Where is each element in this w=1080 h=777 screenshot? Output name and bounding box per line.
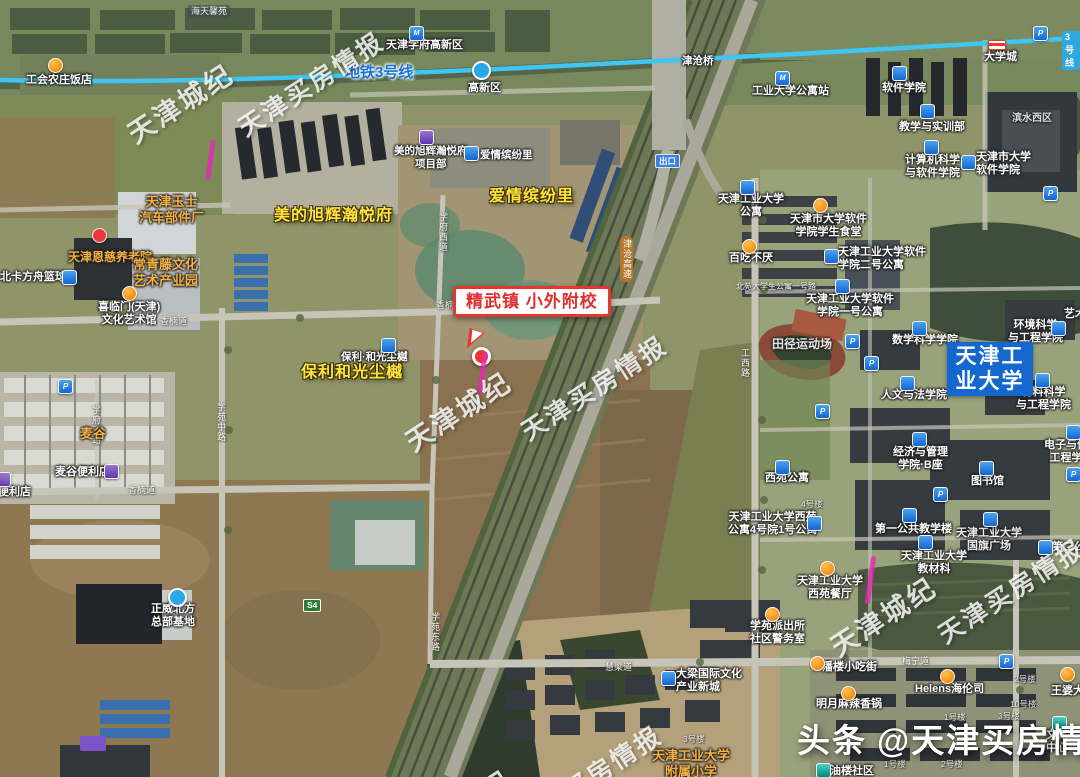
parking-icon[interactable]: P [999, 654, 1014, 669]
office-icon[interactable] [918, 535, 933, 550]
road-xiangnan: 香楠道 [128, 483, 155, 496]
poi-youlou-community[interactable]: 油楼社区 [830, 765, 874, 777]
poi-yushi-factory[interactable]: 天津玉士 汽车部件厂 [139, 194, 204, 226]
road-gongxi: 工西路 [739, 348, 752, 378]
company-icon[interactable] [168, 588, 187, 607]
college-icon[interactable] [1066, 425, 1080, 440]
road-xuefu-west-ave: 学府西道 [437, 212, 450, 252]
parking-icon[interactable]: P [864, 356, 879, 371]
poi-changqingteng-park[interactable]: 常青藤文化 艺术产业园 [133, 257, 198, 289]
station-gongyedaxue-gongyu[interactable]: 工业大学公寓站 [752, 85, 829, 98]
poi-software-dorm-2[interactable]: 天津工业大学软件 学院二号公寓 [838, 246, 926, 273]
restaurant-icon[interactable] [841, 686, 856, 701]
restaurant-icon[interactable] [742, 239, 757, 254]
poi-library[interactable]: 图书馆 [971, 475, 1004, 488]
parking-icon[interactable]: P [933, 487, 948, 502]
baoli-poi[interactable]: 保利·和光尘樾 [341, 351, 408, 364]
poi-baichibuyan[interactable]: 百吃不厌 [729, 252, 773, 265]
road-huiliang: 慧梁道 [605, 660, 632, 673]
building-pill: 2号楼 [1014, 673, 1036, 685]
poi-tgu-apartment[interactable]: 天津工业大学 公寓 [718, 193, 784, 220]
metro-station-icon[interactable] [472, 61, 491, 80]
road-meining: 梅宁道 [902, 654, 929, 667]
road-beiyuan: 北苑大学生公寓一号路 [736, 281, 816, 292]
poi-store[interactable]: 便利店 [0, 486, 31, 499]
college-icon[interactable] [924, 140, 939, 155]
poi-panlou-food-street[interactable]: 潘楼小吃街 [822, 661, 877, 674]
poi-xilinmen-art-hall[interactable]: 喜临门(天津) 文化艺术馆 [98, 301, 160, 328]
parking-icon[interactable]: P [1033, 26, 1048, 41]
canteen-icon[interactable] [813, 198, 828, 213]
highlight-school-callout[interactable]: 精武镇 小外附校 [453, 286, 611, 317]
expressway-name: 津沧高速 [620, 236, 633, 282]
college-icon[interactable] [1035, 373, 1050, 388]
poi-maigu-store[interactable]: 麦谷便利店 [55, 466, 110, 479]
meidi-office[interactable]: 美的旭辉瀚悦府 项目部 [394, 145, 468, 171]
poi-first-teaching-bldg[interactable]: 第一公共教学楼 [875, 523, 952, 536]
parking-icon[interactable]: P [1066, 467, 1080, 482]
poi-gonghui-restaurant[interactable]: 工会农庄饭店 [26, 74, 92, 87]
college-icon[interactable] [920, 104, 935, 119]
food-street-icon[interactable] [810, 656, 825, 671]
restaurant-icon[interactable] [48, 58, 63, 73]
canteen-icon[interactable] [820, 561, 835, 576]
college-icon[interactable] [961, 155, 976, 170]
building-pill: 4号楼 [801, 498, 823, 510]
station-gaoxinqu[interactable]: 高新区 [468, 82, 501, 95]
building-pill: 3号楼 [683, 733, 705, 745]
library-icon[interactable] [979, 461, 994, 476]
poi-daliang-new-city[interactable]: 大梁国际文化 产业新城 [676, 668, 742, 695]
college-icon[interactable] [1051, 321, 1066, 336]
road-xiangnan: 香楠道 [160, 314, 187, 327]
apartment-icon[interactable] [775, 460, 790, 475]
poi-maigu[interactable]: 麦谷 [80, 426, 106, 442]
restaurant-icon[interactable] [1060, 667, 1075, 682]
poi-helens[interactable]: Helens海伦司 [915, 683, 984, 696]
poi-city-software-college[interactable]: 天津市大学 软件学院 [976, 151, 1031, 178]
residence-icon[interactable] [381, 338, 396, 353]
residence-icon[interactable] [464, 146, 479, 161]
poi-cs-college[interactable]: 计算机科学 与软件学院 [905, 154, 960, 181]
road-xueyuan-middle: 学苑中路 [215, 402, 228, 442]
highway-shield: S4 [303, 599, 321, 612]
map-canvas[interactable]: 地铁3号线 高新区 M 天津学府高新区 M 工业大学公寓站 大学城 津沧桥 3号… [0, 0, 1080, 777]
attribution: 头条@天津买房情报 [797, 714, 1080, 762]
plaza-icon[interactable] [983, 512, 998, 527]
poi-student-canteen[interactable]: 天津市大学软件 学院学生食堂 [790, 213, 867, 240]
road-xueyuan-east: 学苑东路 [429, 612, 442, 652]
poi-stadium[interactable]: 田径运动场 [772, 337, 832, 352]
project-aiqing[interactable]: 爱情缤纷里 [489, 187, 574, 207]
parking-icon[interactable]: P [1043, 186, 1058, 201]
aiqing-poi[interactable]: 爱情缤纷里 [480, 149, 533, 162]
building-pill: 10号楼 [1010, 698, 1036, 710]
community-icon[interactable] [816, 763, 831, 777]
college-icon[interactable] [900, 376, 915, 391]
museum-icon[interactable] [122, 286, 137, 301]
area-haitian: 海天馨苑 [188, 5, 230, 18]
convenience-store-icon[interactable] [0, 472, 11, 487]
poi-zhengwei-hq[interactable]: 正威北方 总部基地 [151, 603, 195, 630]
university-name-box[interactable]: 天津工业大学 [947, 342, 1033, 396]
project-office-icon[interactable] [419, 130, 434, 145]
metro-station-icon[interactable]: M [775, 71, 790, 86]
station-daxuecheng-icon[interactable] [988, 40, 1006, 50]
elderly-home-icon[interactable] [92, 228, 107, 243]
college-icon[interactable] [912, 321, 927, 336]
poi-software-college[interactable]: 软件学院 [882, 82, 926, 95]
poi-xiyuan-4th-yard[interactable]: 天津工业大学西苑 公寓4号院1号公寓 [728, 511, 817, 538]
poi-wangpo[interactable]: 王婆大虾 [1051, 685, 1080, 698]
poi-police-station[interactable]: 学苑派出所 社区警务室 [750, 620, 805, 647]
college-icon[interactable] [892, 66, 907, 81]
poi-teaching-training[interactable]: 教学与实训部 [899, 121, 965, 134]
bar-icon[interactable] [940, 669, 955, 684]
parking-icon[interactable]: P [845, 334, 860, 349]
convenience-store-icon[interactable] [104, 464, 119, 479]
college-icon[interactable] [912, 432, 927, 447]
project-meidi[interactable]: 美的旭辉瀚悦府 [274, 206, 393, 226]
poi-xiyuan-canteen[interactable]: 天津工业大学 西苑餐厅 [797, 575, 863, 602]
station-daxuecheng[interactable]: 大学城 [984, 51, 1017, 64]
metro-line-pill: 3号线 [1062, 31, 1080, 70]
poi-art-college[interactable]: 艺术学院 [1064, 308, 1080, 321]
building-icon[interactable] [902, 508, 917, 523]
apartment-icon[interactable] [835, 279, 850, 294]
parking-icon[interactable]: P [815, 404, 830, 419]
poi-software-dorm-1[interactable]: 天津工业大学软件 学院一号公寓 [806, 293, 894, 320]
apartment-icon[interactable] [807, 516, 822, 531]
apartment-icon[interactable] [740, 180, 755, 195]
poi-econ-college[interactable]: 经济与管理 学院·B座 [893, 446, 948, 473]
poi-tgu-primary-school[interactable]: 天津工业大学 附属小学 [652, 748, 730, 777]
apartment-icon[interactable] [824, 249, 839, 264]
poi-electronics-college[interactable]: 电子与信息 工程学院 [1044, 439, 1080, 466]
highway-exit-label: 出口 [655, 154, 680, 168]
bridge-jincangqiao: 津沧桥 [682, 55, 714, 68]
gym-icon[interactable] [62, 270, 77, 285]
station-xuefu-gaoxinqu[interactable]: 天津学府高新区 [386, 39, 463, 52]
poi-humanities-college[interactable]: 人文与法学院 [881, 389, 947, 402]
area-binshui: 滨水西区 [1012, 113, 1052, 125]
parking-icon[interactable]: P [58, 379, 73, 394]
metro-station-icon[interactable]: M [409, 26, 424, 41]
project-baoli[interactable]: 保利和光尘樾 [301, 363, 403, 383]
development-icon[interactable] [661, 671, 676, 686]
police-icon[interactable] [765, 607, 780, 622]
